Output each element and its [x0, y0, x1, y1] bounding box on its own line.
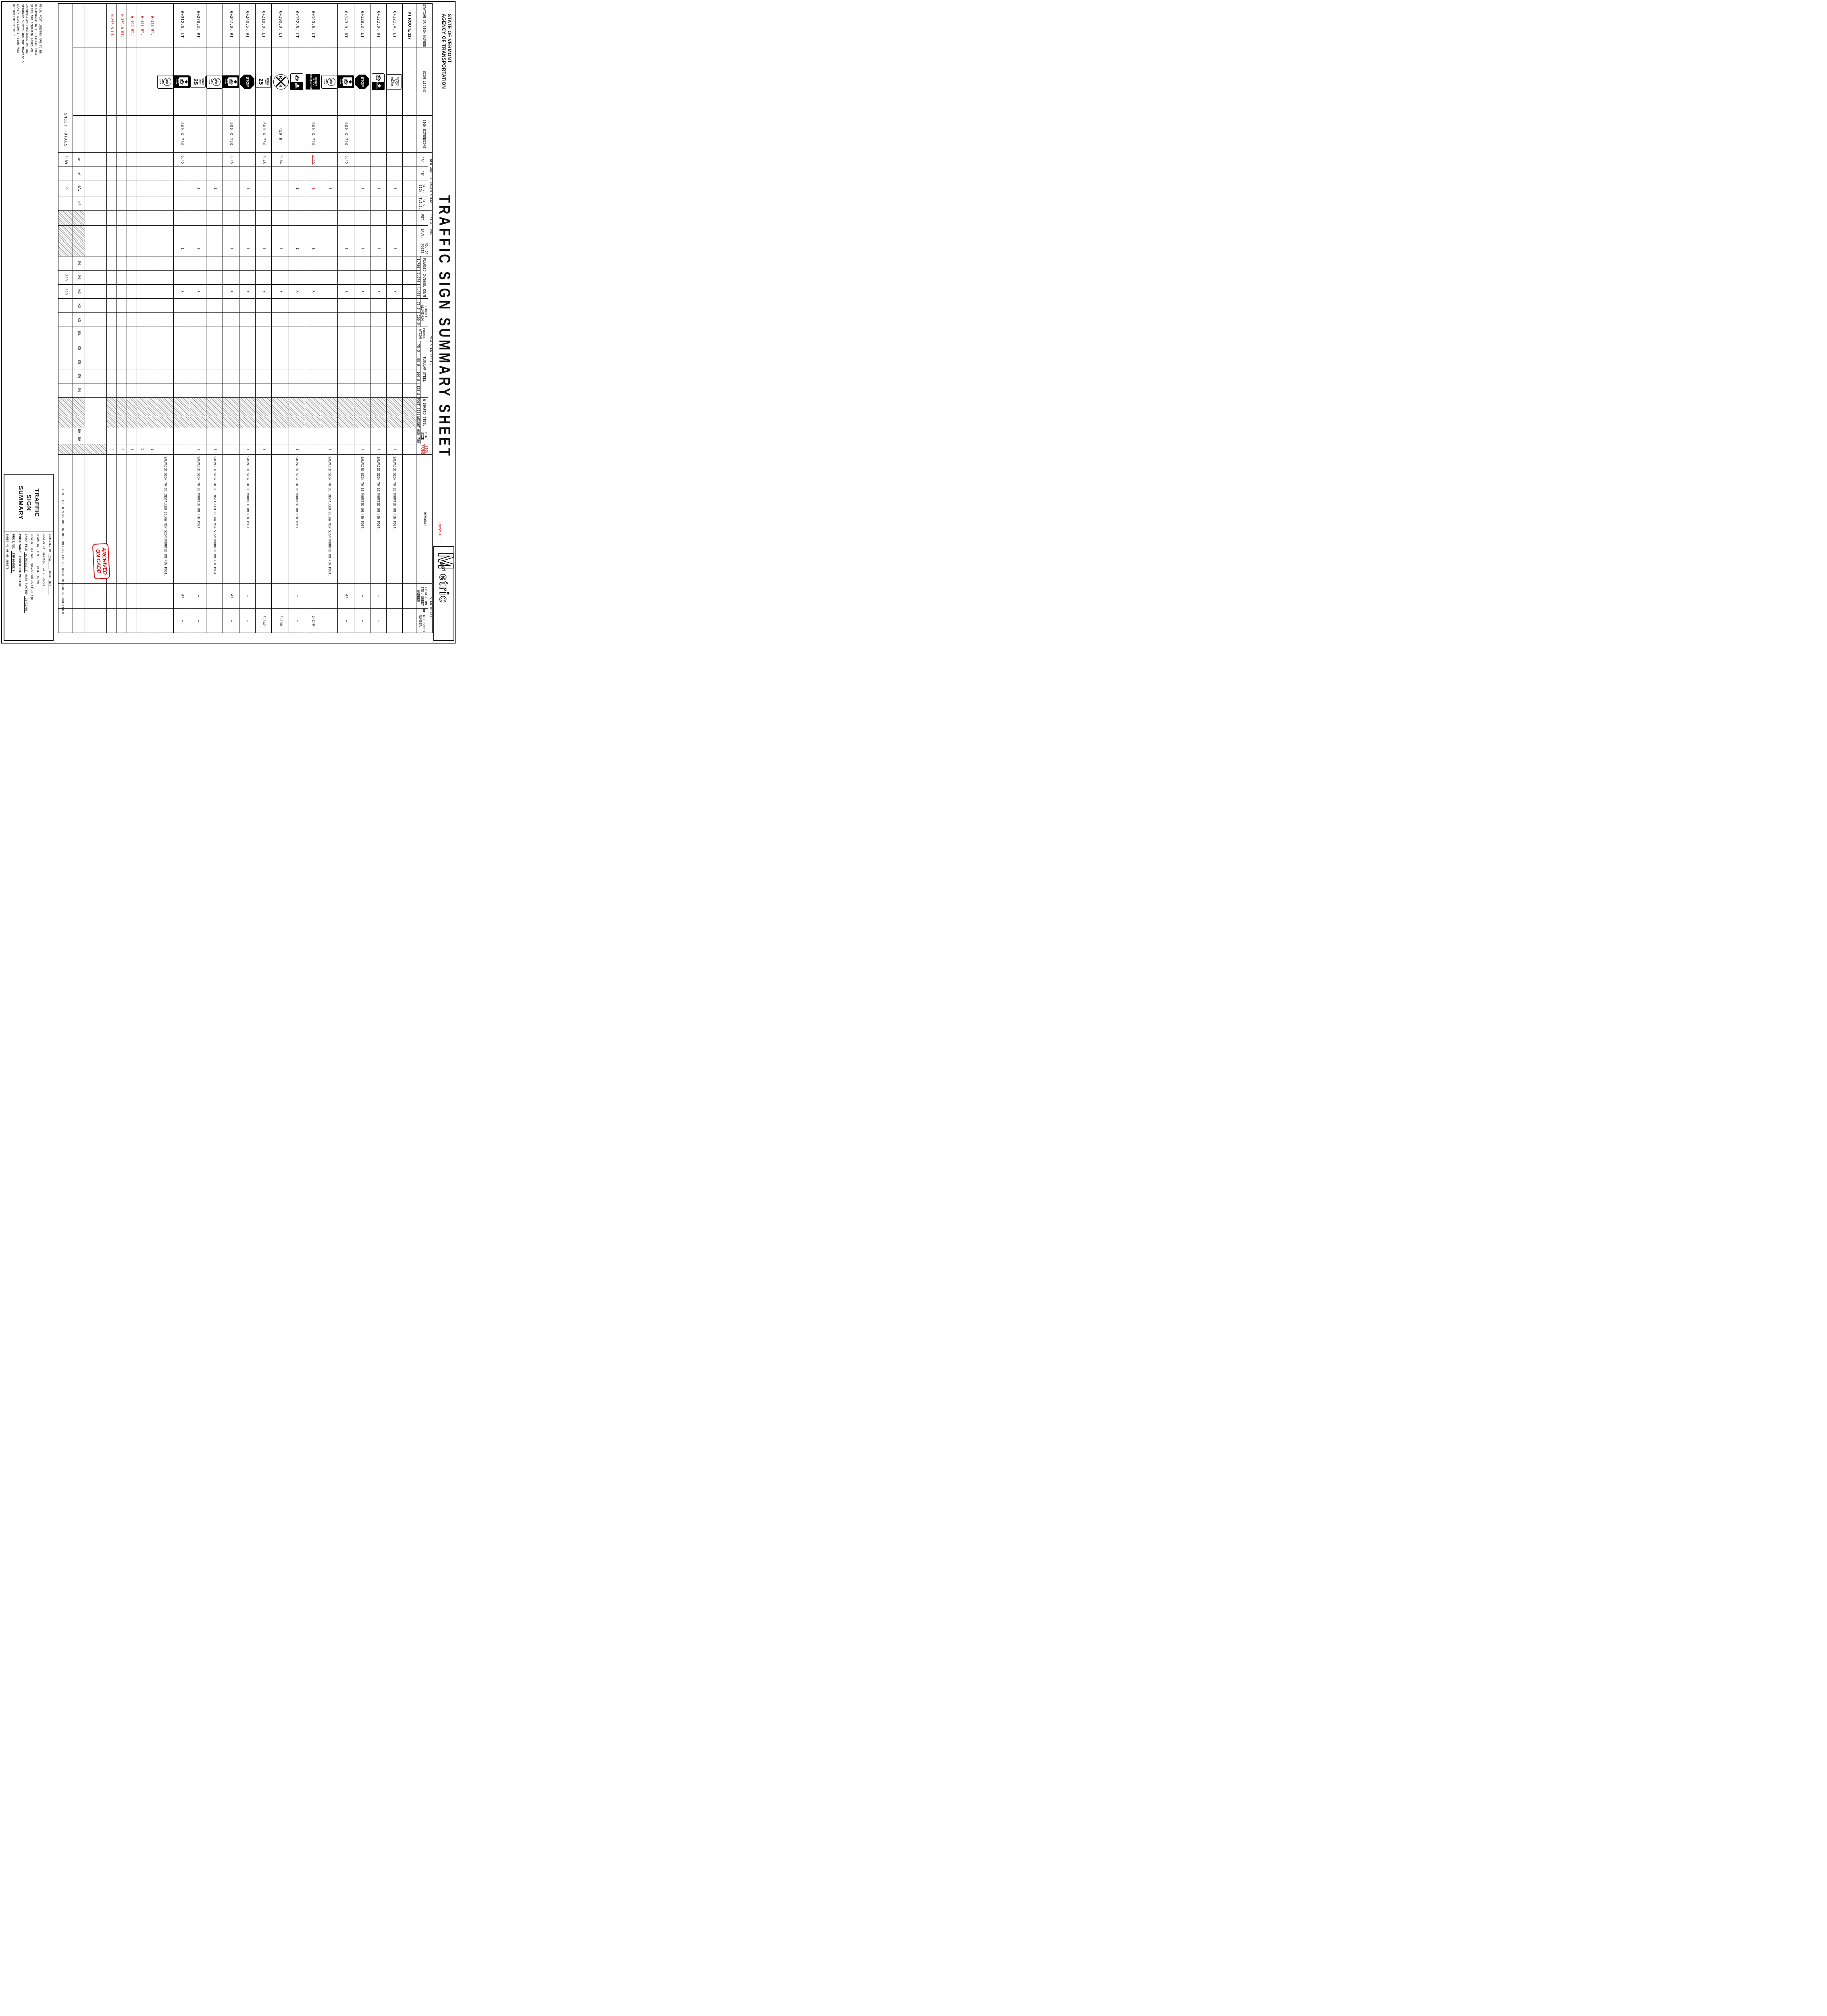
frame-remove-annotation: Remove: [437, 523, 441, 536]
cell-b: [173, 167, 190, 181]
cell-ts100: [305, 369, 321, 383]
cell-legend: ONLYRIGHTLANE: [337, 48, 354, 116]
cell-ret: [223, 211, 239, 226]
cell-remarks: [223, 455, 239, 584]
units-row: m²m²EA.m²KGKGKGKGKGEA.KGKGKGKGEA.EA.: [73, 4, 85, 633]
cell-fc2: [271, 271, 289, 285]
unit-ts125: KG: [73, 383, 85, 398]
cell-detail_sheet: —: [223, 609, 239, 633]
cell-ts90: [85, 355, 106, 369]
bike-lane-ends-sign-icon: LANEENDS: [290, 73, 303, 90]
cell-ftg600: [206, 428, 223, 436]
header-exist-post: EXIST. POST: [428, 211, 433, 241]
cell-ftg600: [321, 428, 337, 436]
cell-ret: [321, 211, 337, 226]
field-label: DRAWN BY: [36, 534, 40, 548]
cell-ts125: [190, 383, 206, 398]
cell-ts75: [255, 341, 271, 355]
cell-posts: 1: [354, 241, 370, 256]
cell-detail_sheet: —: [337, 609, 354, 633]
total-found: [58, 327, 73, 341]
cell-detail_std: —: [386, 584, 402, 609]
cell-posts: 1: [239, 241, 255, 256]
field-value2: 09/96: [36, 575, 40, 590]
cell-b: [354, 167, 370, 181]
cell-ts90: [402, 355, 416, 369]
cell-ret: [354, 211, 370, 226]
field-note: FINAL POST LENGTHS ARE TO BE DETERMINED …: [11, 4, 42, 65]
cell-found: [255, 327, 271, 341]
total-weight: [58, 416, 73, 428]
cell-salv_sign: [157, 181, 173, 196]
cell-ts90: [173, 355, 190, 369]
cell-station: 0+255.5 LT.: [106, 4, 117, 48]
cell-salv_tis: [173, 196, 190, 211]
cell-post_size: [127, 398, 137, 416]
cell-salv: [271, 226, 289, 241]
cell-ts90: [386, 355, 402, 369]
table-row-markup: 0+148 RT.1: [147, 4, 157, 633]
cell-detail_std: 47: [173, 584, 190, 609]
cell-weight: [337, 416, 354, 428]
right-lane-bike-only-sign-icon: ONLYRIGHTLANE: [174, 75, 190, 88]
cell-salv: [223, 226, 239, 241]
cell-ftg750: [239, 436, 255, 444]
cell-fc1: [223, 256, 239, 271]
header-station: STATION OR SIGN NUMBER: [416, 4, 432, 48]
table-row: BIKELANESALVAGED SIGN TO BE INSTALLED BE…: [157, 4, 173, 633]
cell-station: 0+148 RT.: [147, 4, 157, 48]
cell-a: [386, 153, 402, 167]
cell-b: [402, 167, 416, 181]
cell-fc3: [321, 285, 337, 299]
table-row: 0+152.8, LT.LANEENDS11X1SALVAGED SIGN TO…: [289, 4, 305, 633]
cell-ret: [190, 211, 206, 226]
cell-ts90: [271, 355, 289, 369]
cell-fc3: [137, 285, 147, 299]
table-row-markup: 0+153 RT.2: [137, 4, 147, 633]
cell-ts90: [117, 355, 127, 369]
cell-fc3: X: [255, 285, 271, 299]
header-ta100: 100 Ø: [416, 313, 420, 327]
header-b: "B": [416, 167, 428, 181]
cell-detail_sheet: —: [370, 609, 386, 633]
sheet-title: TRAFFIC SIGN SUMMARY SHEET: [435, 169, 454, 484]
table-row-markup: 0+255.5 LT.2: [106, 4, 117, 633]
cell-dims: [239, 116, 255, 153]
cell-fc2: [137, 271, 147, 285]
cell-detail_sheet: —: [190, 609, 206, 633]
table-row: 0+247.0, RT.ONLYRIGHTLANE600 X 7500.451X…: [223, 4, 239, 633]
cell-ts75: [402, 341, 416, 355]
cell-ret: [173, 211, 190, 226]
cell-detail_std: —: [206, 584, 223, 609]
cell-post_size: [354, 398, 370, 416]
cell-station: 0+121.4, LT.: [386, 4, 402, 48]
cell-ta75: [137, 299, 147, 313]
cell-station: 0+240.5, RT.: [239, 4, 255, 48]
cell-fc2: [354, 271, 370, 285]
cell-found: [106, 327, 117, 341]
cell-ftg600: [370, 428, 386, 436]
cell-a: [321, 153, 337, 167]
cell-ftg600: [337, 428, 354, 436]
cell-detail_std: [271, 584, 289, 609]
cell-detail_std: [147, 584, 157, 609]
cell-legend: LANEENDS: [289, 48, 305, 116]
cell-remarks: SALVAGED SIGN TO BE MOUNTED ON NEW POST.: [190, 455, 206, 584]
header-ta75: 75 Ø: [416, 299, 420, 313]
cell-ta100: [305, 313, 321, 327]
field-label: SURVEYED BY: [48, 534, 52, 552]
table-row: 0+240.5, RT.STOP11X1SALVAGED SIGN TO BE …: [239, 4, 255, 633]
cell-ta75: [85, 299, 106, 313]
cell-salv: [354, 226, 370, 241]
cell-detail_std: [305, 584, 321, 609]
cell-ts100: [173, 369, 190, 383]
cell-ta100: [255, 313, 271, 327]
cell-salv: [255, 226, 271, 241]
cell-salv_sign: 1: [190, 181, 206, 196]
table-row-markup: 0+192 RT.1: [127, 4, 137, 633]
cell-ta100: [354, 313, 370, 327]
total-ftg750: [58, 436, 73, 444]
cell-ts125: [386, 383, 402, 398]
title-block-field: IPARM FILEpdl02tsi.iDATE PLOTTED10/11/96: [24, 534, 28, 638]
title-block-title-line: SUMMARY: [17, 486, 25, 520]
cell-ta100: [127, 313, 137, 327]
header-no-of-posts: NO. OF POSTS: [416, 241, 432, 256]
cell-posts: 1: [223, 241, 239, 256]
cell-salv_tis: [337, 196, 354, 211]
cell-detail_sheet: —: [321, 609, 337, 633]
cell-salv_sign: [255, 181, 271, 196]
cell-post_size: [402, 398, 416, 416]
cell-frame: 2: [106, 444, 117, 455]
cell-salv_tis: [117, 196, 127, 211]
cell-fc3: [106, 285, 117, 299]
cell-a: [190, 153, 206, 167]
cell-ta75: [157, 299, 173, 313]
field-value2: N/A: [48, 579, 52, 595]
cell-salv_sign: 1: [239, 181, 255, 196]
cell-detail_sheet: [85, 609, 106, 633]
field-value: JLL/CAE: [42, 551, 46, 566]
cell-found: [321, 327, 337, 341]
cell-ts90: [289, 355, 305, 369]
cell-ta100: [370, 313, 386, 327]
cell-fc3: X: [386, 285, 402, 299]
cell-ts100: [239, 369, 255, 383]
table-row: 0+190.0, LT.RR450 R0.641XE-190: [271, 4, 289, 633]
cell-posts: [402, 241, 416, 256]
header-a: "A": [416, 153, 428, 167]
unit-b: m²: [73, 167, 85, 181]
cell-fc1: [85, 256, 106, 271]
header-sign-detail: SIGN DETAIL: [428, 584, 433, 633]
header-weight: WEIGHT: [416, 416, 420, 428]
cell-found: [85, 327, 106, 341]
cell-detail_sheet: —: [354, 609, 370, 633]
cell-dims: [85, 116, 106, 153]
cell-post_size: [85, 398, 106, 416]
cell-b: [190, 167, 206, 181]
cell-ret: [370, 211, 386, 226]
total-salv_sign: 9: [58, 181, 73, 196]
cell-ret: [305, 211, 321, 226]
cell-ts75: [206, 341, 223, 355]
cell-ftg600: [223, 428, 239, 436]
cell-detail_std: [402, 584, 416, 609]
cell-post_size: [321, 398, 337, 416]
cell-dims: [289, 116, 305, 153]
header-ftg-size: FTG. SIZE: [420, 428, 428, 444]
cell-posts: [137, 241, 147, 256]
cell-ftg750: [206, 436, 223, 444]
cell-legend: LANEAHEAD: [370, 48, 386, 116]
cell-ta100: [157, 313, 173, 327]
cell-frame: 1: [321, 444, 337, 455]
cell-fc3: X: [305, 285, 321, 299]
cell-a: [289, 153, 305, 167]
cell-ftg750: [402, 436, 416, 444]
cell-dims: [402, 116, 416, 153]
unit-post_size: [73, 398, 85, 416]
cell-remarks: [271, 455, 289, 584]
cell-dims: [190, 116, 206, 153]
cell-salv: [147, 226, 157, 241]
cell-station: 0+278.3, RT.: [190, 4, 206, 48]
dimensions-note-text: ALL DIMENSIONS IN MILLIMETERS EXCEPT WHE…: [61, 500, 65, 614]
cell-found: [305, 327, 321, 341]
cell-fc2: [239, 271, 255, 285]
cell-fc3: X: [370, 285, 386, 299]
cell-detail_std: [106, 584, 117, 609]
cell-found: [173, 327, 190, 341]
cell-post_size: [305, 398, 321, 416]
dimensions-note: NOTE: ALL DIMENSIONS IN MILLIMETERS EXCE…: [60, 489, 65, 634]
cell-ftg600: [85, 428, 106, 436]
cell-dims: 600 X 750: [173, 116, 190, 153]
cell-ta100: [321, 313, 337, 327]
cell-ret: [289, 211, 305, 226]
cell-ts125: [117, 383, 127, 398]
header-salv-tis: SALV. T.I.S.: [416, 196, 428, 211]
cell-ta75: [223, 299, 239, 313]
cell-salv: [173, 226, 190, 241]
cell-a: [157, 153, 173, 167]
cell-ts100: [402, 369, 416, 383]
cell-ta100: [239, 313, 255, 327]
cell-salv: [85, 226, 106, 241]
cell-salv_sign: [117, 181, 127, 196]
cell-ta75: [206, 299, 223, 313]
cell-dims: 600 X 750: [223, 116, 239, 153]
cell-posts: 1: [289, 241, 305, 256]
cell-frame: 2: [137, 444, 147, 455]
cell-detail_sheet: —: [206, 609, 223, 633]
cell-detail_sheet: —: [239, 609, 255, 633]
total-ta100: [58, 313, 73, 327]
cell-ta75: [321, 299, 337, 313]
traffic-sign-summary-sheet: STATE OF VERMONT AGENCY OF TRANSPORTATIO…: [0, 0, 457, 645]
cell-found: [370, 327, 386, 341]
cell-salv_sign: [402, 181, 416, 196]
cell-salv: [321, 226, 337, 241]
cell-a: 0.45: [223, 153, 239, 167]
cell-ta75: [190, 299, 206, 313]
cell-legend: SPEEDLIMIT25: [255, 48, 271, 116]
cell-detail_std: [85, 584, 106, 609]
cell-dims: [137, 116, 147, 153]
cell-dims: [127, 116, 137, 153]
cell-detail_sheet: [106, 609, 117, 633]
cell-detail_std: [117, 584, 127, 609]
cell-legend: STOP: [354, 48, 370, 116]
total-salv: [58, 226, 73, 241]
cell-ta100: [147, 313, 157, 327]
cell-post_size: [173, 398, 190, 416]
cell-ts100: [354, 369, 370, 383]
cell-ta75: [147, 299, 157, 313]
cell-weight: [85, 416, 106, 428]
cell-frame: 2: [117, 444, 127, 455]
cell-posts: 1: [337, 241, 354, 256]
cell-a: [127, 153, 137, 167]
cell-b: [85, 167, 106, 181]
cell-salv_tis: [157, 196, 173, 211]
cell-ts90: [106, 355, 117, 369]
unit-salv: [73, 226, 85, 241]
cell-b: [157, 167, 173, 181]
cell-weight: [255, 416, 271, 428]
header-ret: RET.: [416, 211, 428, 226]
cell-a: [402, 153, 416, 167]
cell-fc2: [117, 271, 127, 285]
cell-legend: DO NOTSTOPONTRACKS: [386, 48, 402, 116]
cell-salv: [206, 226, 223, 241]
do-not-block-intersection-sign-icon: DO NOTBLOCKINTERSECTION: [306, 74, 320, 90]
cell-ts125: [127, 383, 137, 398]
cell-ts75: [239, 341, 255, 355]
cell-salv: [305, 226, 321, 241]
cell-fc1: [157, 256, 173, 271]
cell-ts75: [321, 341, 337, 355]
cell-ts100: [255, 369, 271, 383]
cell-frame: 1: [147, 444, 157, 455]
header-fc1: 1.786: [416, 256, 420, 271]
cell-remarks: SALVAGED SIGN TO BE INSTALLED BELOW NEW …: [321, 455, 337, 584]
cell-b: [271, 167, 289, 181]
total-post_size: [58, 398, 73, 416]
stamp-line2: ON CADD: [94, 548, 102, 575]
cell-fc1: [137, 256, 147, 271]
cell-ts100: [370, 369, 386, 383]
cell-fc3: X: [354, 285, 370, 299]
unit-weight: [73, 416, 85, 428]
cell-frame: 1: [239, 444, 255, 455]
cell-detail_std: 47: [223, 584, 239, 609]
cell-ts125: [157, 383, 173, 398]
cell-detail_sheet: E-142: [255, 609, 271, 633]
cell-legend: BIKELANE: [321, 48, 337, 116]
cell-post_size: [157, 398, 173, 416]
cell-ftg750: [117, 436, 127, 444]
cell-salv: [370, 226, 386, 241]
header-detail-std-sheet: DETAIL ON STD. SHEET NUMBER: [416, 584, 428, 609]
unit-fc2: KG: [73, 271, 85, 285]
cell-found: [190, 327, 206, 341]
title-block-fields: SURVEYED BYN/ADATEN/ADESIGN BYJLL/CAEDAT…: [4, 531, 53, 640]
cell-found: [127, 327, 137, 341]
cell-salv_tis: [271, 196, 289, 211]
cell-found: [402, 327, 416, 341]
cell-salv_tis: [386, 196, 402, 211]
header-detail-sheet: DETAIL SHEET NUMBER: [416, 609, 428, 633]
cell-dims: [206, 116, 223, 153]
cell-ta75: [337, 299, 354, 313]
cell-a: [206, 153, 223, 167]
cell-ts75: [271, 341, 289, 355]
cell-ts125: [337, 383, 354, 398]
header-w-shaped-steel: W SHAPED STEEL: [420, 398, 428, 428]
cell-ta100: [271, 313, 289, 327]
cell-weight: [239, 416, 255, 428]
cell-a: [106, 153, 117, 167]
cell-ts100: [386, 369, 402, 383]
table-row: 0+143.0, RT.ONLYRIGHTLANE600 X 7500.451X…: [337, 4, 354, 633]
cell-fc1: [206, 256, 223, 271]
cell-ret: [147, 211, 157, 226]
unit-posts: [73, 241, 85, 256]
unit-fc1: KG: [73, 256, 85, 271]
cell-fc3: X: [337, 285, 354, 299]
cell-post_size: [137, 398, 147, 416]
unit-detail_sheet: [73, 609, 85, 633]
cell-found: [223, 327, 239, 341]
cell-salv_tis: [223, 196, 239, 211]
cell-salv: [337, 226, 354, 241]
cell-frame: [85, 444, 106, 455]
bike-lane-sign-icon: BIKELANE: [321, 75, 337, 89]
total-salv_tis: [58, 196, 73, 211]
cell-remarks: SALVAGED SIGN TO BE MOUNTED ON NEW POST.: [239, 455, 255, 584]
field-label: SHEET 42 OF 48 SHEETS: [6, 534, 9, 570]
cell-b: [239, 167, 255, 181]
total-ta75: [58, 299, 73, 313]
cell-ts100: [106, 369, 117, 383]
cell-salv_tis: [147, 196, 157, 211]
cell-salv_sign: [147, 181, 157, 196]
cell-weight: [190, 416, 206, 428]
cell-detail_std: [137, 584, 147, 609]
title-block: TRAFFICSIGNSUMMARY SURVEYED BYN/ADATEN/A…: [4, 474, 54, 641]
cell-b: [321, 167, 337, 181]
cell-legend: [147, 48, 157, 116]
cell-ret: [206, 211, 223, 226]
cell-ftg600: [147, 428, 157, 436]
cell-fc1: [190, 256, 206, 271]
cell-legend: ONLYRIGHTLANE: [173, 48, 190, 116]
cell-detail_std: —: [239, 584, 255, 609]
cell-ts125: [255, 383, 271, 398]
cell-ts125: [354, 383, 370, 398]
cell-found: [386, 327, 402, 341]
cell-station: 0+247.0, RT.: [223, 4, 239, 48]
field-value: W-M: [36, 549, 40, 564]
cell-fc1: [255, 256, 271, 271]
cell-ts75: [370, 341, 386, 355]
